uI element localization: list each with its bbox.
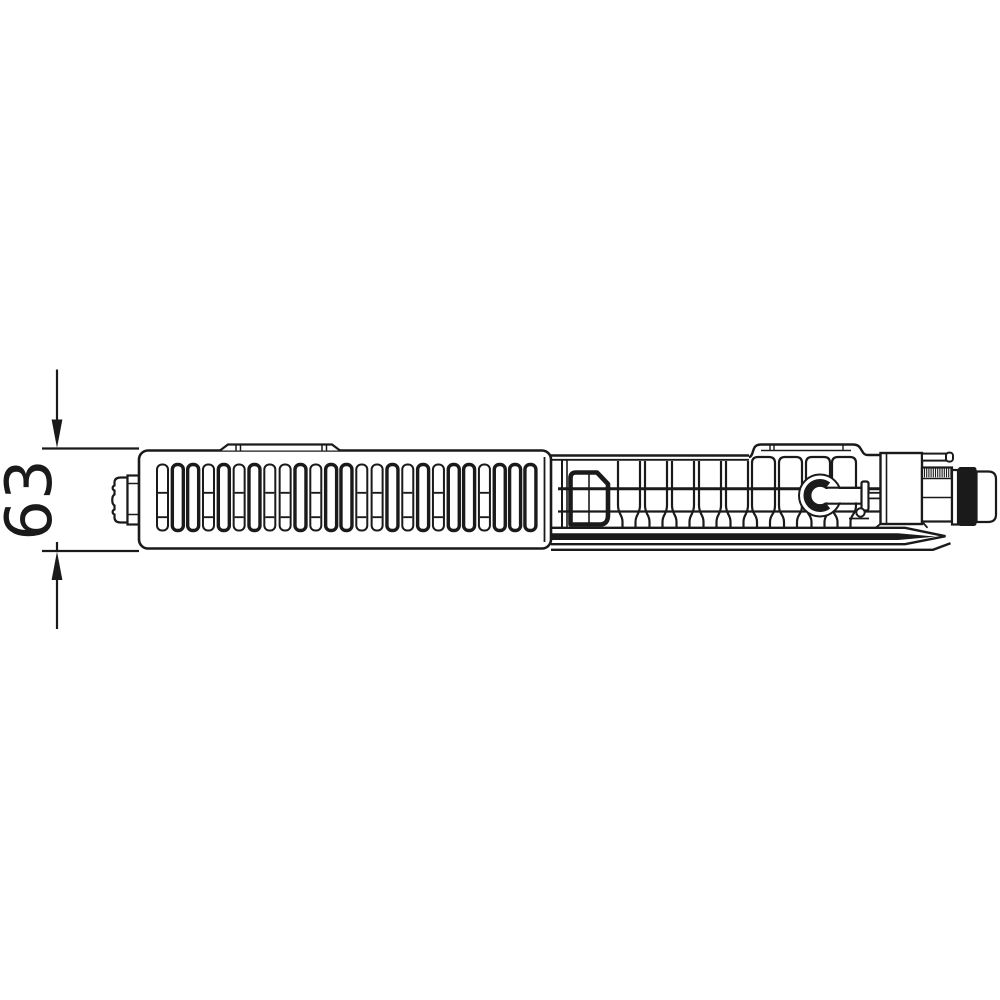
top-connection-pipe	[922, 454, 946, 461]
convector-fin-side	[672, 461, 677, 528]
radiator-technical-drawing: 63	[0, 0, 1000, 1000]
valve-tube-flange	[862, 482, 869, 511]
convector-fin-side	[645, 461, 650, 528]
valve-end-cap	[977, 472, 997, 523]
front-panel	[139, 445, 551, 549]
convector-fin-side	[699, 461, 704, 528]
bottom-panel-black-band	[552, 533, 936, 540]
valve-threads	[925, 469, 951, 478]
convector-fin	[752, 457, 775, 528]
dimension-arrowhead-down	[52, 420, 63, 449]
dimension-label: 63	[0, 459, 67, 540]
dimension-arrowhead-up	[52, 552, 63, 581]
valve-tube-fill	[824, 489, 862, 502]
convector-fin-side	[690, 461, 695, 528]
convector-fin-side	[717, 461, 722, 528]
top-connection-pipe-end	[946, 453, 953, 462]
convector-fin-side	[636, 461, 641, 528]
valve-black-ring	[958, 467, 977, 526]
convector-fin-side	[618, 461, 623, 528]
valve-spindle	[869, 493, 882, 499]
valve-washer-ring	[952, 470, 958, 525]
left-blind-plug	[112, 476, 139, 525]
technical-drawing-page: 63	[0, 0, 1000, 1000]
thermostat-connection	[876, 453, 997, 528]
convector-fin-side	[744, 461, 749, 528]
drawing-root: 63	[0, 370, 996, 630]
convector-fin-side	[663, 461, 668, 528]
plug-cap	[112, 478, 127, 523]
convector-fin-side	[726, 461, 731, 528]
valve-bolt-circle	[856, 508, 864, 516]
